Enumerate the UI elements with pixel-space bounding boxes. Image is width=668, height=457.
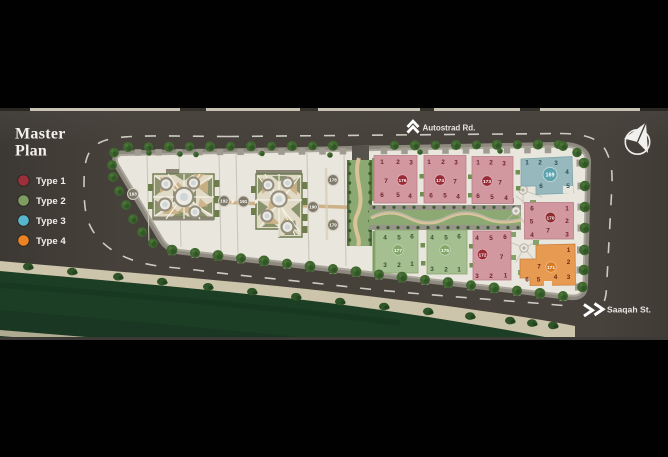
- svg-text:5: 5: [443, 193, 447, 200]
- svg-text:7: 7: [384, 178, 388, 185]
- svg-text:5: 5: [537, 277, 541, 284]
- svg-text:7: 7: [500, 254, 504, 261]
- svg-text:179: 179: [329, 223, 337, 228]
- svg-text:5: 5: [397, 235, 401, 242]
- svg-text:170: 170: [546, 215, 554, 221]
- svg-text:1: 1: [476, 160, 480, 167]
- svg-text:6: 6: [503, 234, 507, 241]
- svg-text:5: 5: [490, 194, 494, 201]
- svg-text:5: 5: [489, 235, 493, 242]
- svg-text:191: 191: [240, 199, 248, 204]
- svg-text:193: 193: [129, 192, 137, 197]
- svg-text:Autostrad Rd.: Autostrad Rd.: [423, 124, 476, 133]
- svg-text:Plan: Plan: [15, 143, 47, 160]
- svg-text:5: 5: [530, 219, 534, 226]
- svg-text:3: 3: [502, 161, 506, 168]
- svg-text:2: 2: [489, 160, 493, 167]
- svg-text:4: 4: [456, 194, 460, 201]
- svg-text:4: 4: [530, 232, 534, 239]
- svg-text:3: 3: [409, 160, 413, 167]
- svg-text:7: 7: [537, 264, 541, 271]
- svg-text:7: 7: [453, 179, 457, 186]
- svg-text:Master: Master: [15, 126, 66, 143]
- svg-text:Type 4: Type 4: [36, 236, 66, 247]
- svg-text:6: 6: [525, 277, 529, 284]
- svg-text:6: 6: [539, 183, 543, 190]
- svg-text:6: 6: [410, 234, 414, 241]
- svg-text:5: 5: [444, 235, 448, 242]
- svg-text:6: 6: [457, 234, 461, 241]
- svg-text:3: 3: [383, 262, 387, 269]
- svg-text:178: 178: [329, 178, 337, 183]
- svg-text:1: 1: [567, 247, 571, 254]
- svg-text:2: 2: [538, 160, 542, 167]
- svg-text:1: 1: [457, 267, 461, 274]
- svg-text:4: 4: [430, 235, 434, 242]
- svg-text:3: 3: [565, 232, 569, 239]
- svg-text:2: 2: [444, 267, 448, 274]
- svg-text:176: 176: [398, 178, 406, 184]
- svg-text:6: 6: [429, 193, 433, 200]
- svg-text:1: 1: [504, 273, 508, 280]
- svg-text:6: 6: [476, 193, 480, 200]
- svg-text:190: 190: [309, 205, 317, 210]
- svg-text:3: 3: [430, 266, 434, 273]
- svg-text:1: 1: [410, 261, 414, 268]
- svg-text:1: 1: [525, 160, 529, 167]
- svg-text:7: 7: [498, 180, 502, 187]
- svg-text:3: 3: [567, 274, 571, 281]
- svg-text:192: 192: [220, 199, 228, 204]
- svg-text:2: 2: [441, 159, 445, 166]
- svg-text:5: 5: [566, 183, 570, 190]
- svg-text:175: 175: [441, 248, 449, 254]
- svg-text:172: 172: [478, 252, 486, 258]
- svg-text:169: 169: [546, 173, 555, 179]
- svg-text:2: 2: [489, 273, 493, 280]
- svg-text:4: 4: [504, 195, 508, 202]
- svg-text:Saaqah St.: Saaqah St.: [607, 305, 651, 315]
- svg-text:5: 5: [396, 192, 400, 199]
- svg-text:6: 6: [380, 192, 384, 199]
- svg-text:Type 3: Type 3: [36, 216, 66, 227]
- svg-text:1: 1: [427, 159, 431, 166]
- svg-text:2: 2: [396, 159, 400, 166]
- svg-text:1: 1: [380, 159, 384, 166]
- svg-text:2: 2: [565, 218, 569, 225]
- svg-text:1: 1: [565, 206, 569, 213]
- svg-text:3: 3: [454, 160, 458, 167]
- svg-text:4: 4: [565, 169, 569, 176]
- svg-text:Type 1: Type 1: [36, 176, 66, 187]
- svg-text:4: 4: [408, 193, 412, 200]
- svg-text:3: 3: [475, 273, 479, 280]
- svg-text:3: 3: [554, 160, 558, 167]
- svg-text:171: 171: [547, 265, 555, 271]
- svg-text:177: 177: [394, 248, 402, 254]
- svg-text:173: 173: [483, 179, 491, 185]
- svg-text:6: 6: [530, 206, 534, 213]
- svg-text:4: 4: [383, 235, 387, 242]
- svg-text:4: 4: [475, 235, 479, 242]
- svg-text:174: 174: [436, 178, 444, 184]
- svg-text:2: 2: [397, 262, 401, 269]
- svg-text:2: 2: [567, 259, 571, 266]
- svg-text:Type 2: Type 2: [36, 196, 66, 207]
- svg-text:7: 7: [546, 228, 550, 235]
- svg-text:4: 4: [554, 274, 558, 281]
